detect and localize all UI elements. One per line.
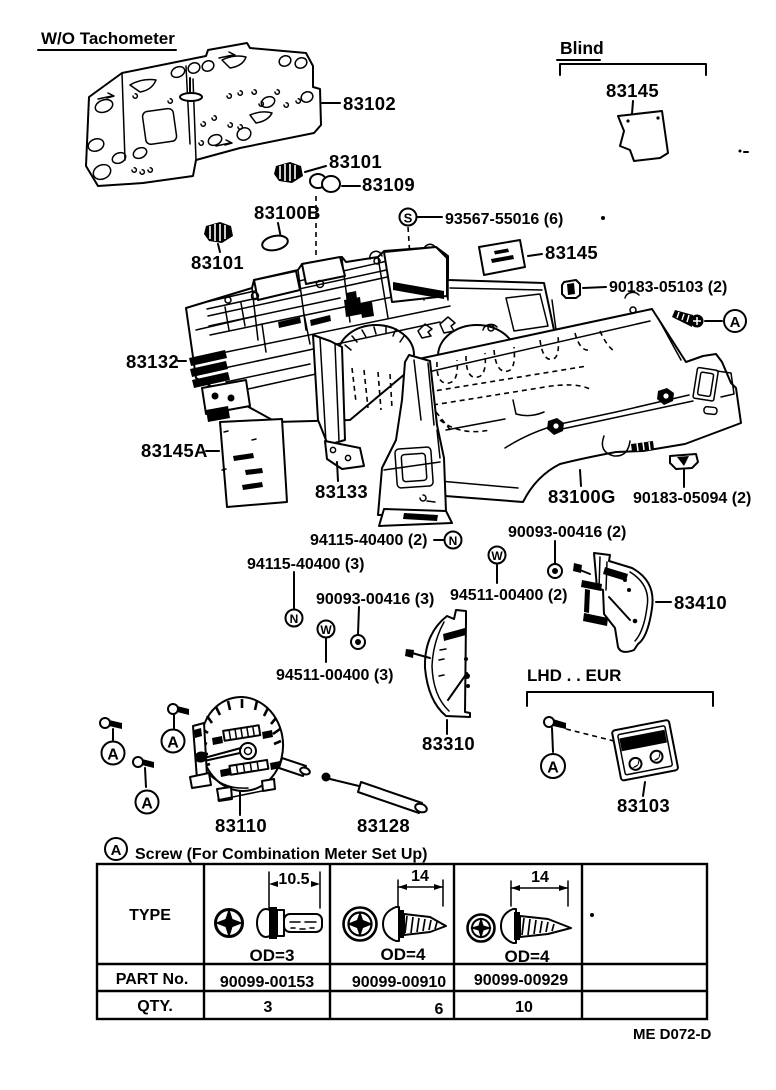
svg-text:A: A xyxy=(730,314,741,331)
svg-text:6: 6 xyxy=(435,1001,444,1018)
svg-text:W: W xyxy=(320,623,332,637)
svg-text:N: N xyxy=(290,612,299,626)
svg-text:83145: 83145 xyxy=(606,80,659,101)
svg-text:10.5: 10.5 xyxy=(278,871,309,888)
svg-text:83410: 83410 xyxy=(674,592,727,613)
svg-text:83128: 83128 xyxy=(357,815,410,836)
svg-text:ME D072-D: ME D072-D xyxy=(633,1026,712,1043)
svg-text:94511-00400 (3): 94511-00400 (3) xyxy=(276,667,393,684)
svg-text:94115-40400 (3): 94115-40400 (3) xyxy=(247,556,364,573)
svg-text:A: A xyxy=(547,760,559,777)
svg-text:83110: 83110 xyxy=(215,815,267,836)
svg-text:N: N xyxy=(449,534,458,548)
svg-text:94511-00400 (2): 94511-00400 (2) xyxy=(450,587,567,604)
svg-text:83132: 83132 xyxy=(126,351,179,372)
svg-text:A: A xyxy=(111,842,122,859)
svg-text:90183-05094 (2): 90183-05094 (2) xyxy=(633,490,751,507)
svg-text:83100G: 83100G xyxy=(548,486,616,507)
svg-text:83101: 83101 xyxy=(191,252,244,273)
svg-text:S: S xyxy=(404,211,413,226)
svg-text:OD=4: OD=4 xyxy=(505,947,550,966)
svg-text:W: W xyxy=(491,549,503,563)
svg-text:83109: 83109 xyxy=(362,174,415,195)
svg-text:A: A xyxy=(107,747,119,764)
svg-text:TYPE: TYPE xyxy=(129,907,171,924)
svg-text:94115-40400 (2): 94115-40400 (2) xyxy=(310,532,427,549)
svg-text:83102: 83102 xyxy=(343,93,396,114)
svg-text:10: 10 xyxy=(515,999,533,1016)
svg-text:14: 14 xyxy=(411,868,429,885)
svg-text:83145A: 83145A xyxy=(141,440,208,461)
svg-text:OD=4: OD=4 xyxy=(381,945,426,964)
svg-text:90099-00910: 90099-00910 xyxy=(352,974,446,991)
svg-text:Blind: Blind xyxy=(560,38,604,58)
svg-text:83145: 83145 xyxy=(545,242,598,263)
svg-text:Screw (For Combination Meter S: Screw (For Combination Meter Set Up) xyxy=(135,846,427,863)
svg-text:90093-00416 (2): 90093-00416 (2) xyxy=(508,524,626,541)
svg-text:OD=3: OD=3 xyxy=(250,946,295,965)
svg-text:83101: 83101 xyxy=(329,151,382,172)
svg-text:A: A xyxy=(141,796,153,813)
svg-text:QTY.: QTY. xyxy=(137,998,173,1015)
svg-text:14: 14 xyxy=(531,869,549,886)
svg-text:90099-00153: 90099-00153 xyxy=(220,974,314,991)
svg-text:LHD . . EUR: LHD . . EUR xyxy=(527,666,621,685)
svg-text:83133: 83133 xyxy=(315,481,368,502)
svg-text:90099-00929: 90099-00929 xyxy=(474,972,568,989)
svg-text:A: A xyxy=(167,735,179,752)
svg-text:3: 3 xyxy=(264,999,273,1016)
svg-text:83103: 83103 xyxy=(617,795,670,816)
svg-text:83100B: 83100B xyxy=(254,202,321,223)
svg-text:W/O Tachometer: W/O Tachometer xyxy=(41,29,175,48)
svg-text:PART No.: PART No. xyxy=(116,971,189,988)
svg-text:90183-05103 (2): 90183-05103 (2) xyxy=(609,279,727,296)
svg-text:83310: 83310 xyxy=(422,733,475,754)
svg-text:93567-55016 (6): 93567-55016 (6) xyxy=(445,211,563,228)
svg-text:90093-00416 (3): 90093-00416 (3) xyxy=(316,591,434,608)
